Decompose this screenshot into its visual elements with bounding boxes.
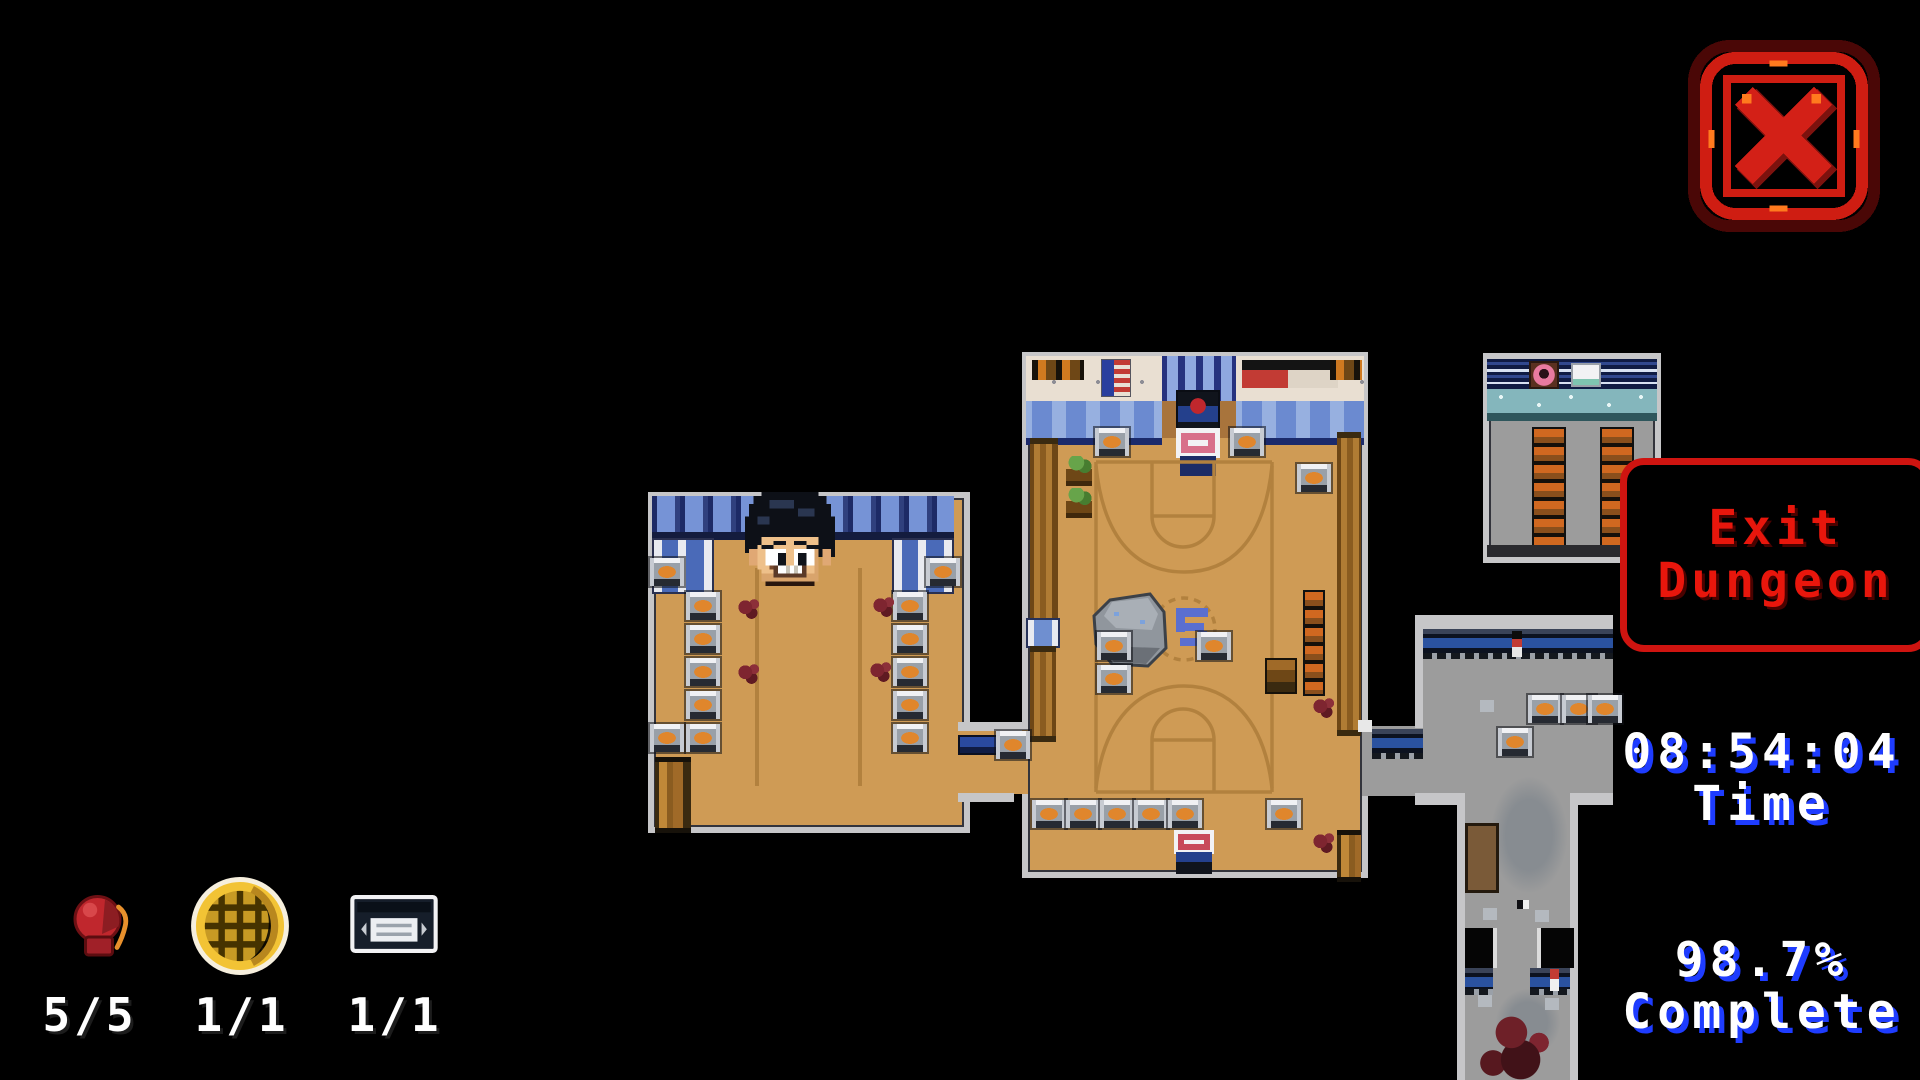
timer-block: 08:54:04 Time bbox=[1612, 726, 1912, 830]
desk bbox=[1168, 800, 1202, 828]
gym-cabinet-left bbox=[1028, 620, 1058, 646]
gym-bench-left bbox=[1030, 438, 1058, 632]
blood-splat bbox=[1312, 832, 1338, 854]
floor-tile-mark bbox=[1478, 995, 1492, 1007]
gym-bench-right bbox=[1337, 432, 1361, 736]
close-x-icon bbox=[1688, 40, 1880, 232]
desk bbox=[686, 691, 720, 719]
desk bbox=[1134, 800, 1168, 828]
potted-plant bbox=[1066, 488, 1092, 518]
wooden-crate bbox=[1267, 660, 1295, 692]
close-button[interactable] bbox=[1688, 40, 1880, 232]
door-mat bbox=[1468, 826, 1496, 890]
desk bbox=[893, 658, 927, 686]
blood-splat bbox=[737, 663, 763, 685]
blood-pool bbox=[1470, 1012, 1562, 1080]
menu-board-sign bbox=[1573, 365, 1599, 385]
backboard-bottom bbox=[1174, 830, 1214, 854]
cafeteria-counter bbox=[1487, 389, 1657, 421]
passage-cap bbox=[1358, 720, 1372, 732]
desk bbox=[893, 691, 927, 719]
collectible-count-tapes: 1/1 bbox=[335, 988, 455, 1042]
gym-bench-left bbox=[1030, 646, 1056, 742]
exit-button-line1: Exit bbox=[1708, 502, 1844, 555]
gym-shelf bbox=[1337, 830, 1361, 882]
desk bbox=[1100, 800, 1134, 828]
desk bbox=[1230, 428, 1264, 456]
classroom-floor-line-right bbox=[858, 568, 862, 786]
exit-dungeon-button[interactable]: Exit Dungeon bbox=[1620, 458, 1920, 652]
desk bbox=[1097, 632, 1131, 660]
desk bbox=[1066, 800, 1100, 828]
desk bbox=[1032, 800, 1066, 828]
corridor-door-jamb-right bbox=[1537, 928, 1574, 968]
corridor-lockers-mid-left bbox=[1465, 968, 1493, 995]
desk bbox=[686, 592, 720, 620]
completion-label: Complete bbox=[1612, 986, 1912, 1038]
locker-poster bbox=[1512, 631, 1522, 657]
desk bbox=[686, 625, 720, 653]
floor-tile-mark bbox=[1535, 910, 1549, 922]
basketball-hoop-bottom bbox=[1176, 852, 1212, 874]
corridor-door-jamb-left bbox=[1465, 928, 1497, 968]
player-head-marker bbox=[736, 492, 844, 598]
locker-poster bbox=[1550, 969, 1559, 991]
completion-block: 98.7% Complete bbox=[1612, 934, 1912, 1038]
desk bbox=[1097, 665, 1131, 693]
collectible-count-waffles: 1/1 bbox=[182, 988, 302, 1042]
desk bbox=[1498, 728, 1532, 756]
corridor-lower-wall-left bbox=[1457, 793, 1465, 1080]
blood-splat bbox=[872, 596, 898, 618]
cafeteria-chairs bbox=[1534, 429, 1564, 551]
corridor-step-wall-right bbox=[1578, 793, 1613, 805]
desk bbox=[1197, 632, 1231, 660]
passage-lockers bbox=[1372, 729, 1423, 759]
cafeteria-menu-wall bbox=[1487, 359, 1657, 389]
boxing-glove-icon bbox=[64, 886, 140, 964]
passage-wall-top bbox=[958, 722, 1022, 731]
corridor-top-wall bbox=[1415, 615, 1613, 629]
desk bbox=[650, 558, 684, 586]
completion-value: 98.7% bbox=[1612, 934, 1912, 986]
corridor-left-wall bbox=[1415, 615, 1423, 728]
floor-tile-mark bbox=[1483, 908, 1497, 920]
vhs-tape-icon bbox=[350, 894, 438, 954]
passage-wall-bottom bbox=[958, 793, 1014, 802]
blood-splat bbox=[869, 661, 895, 683]
desk bbox=[1267, 800, 1301, 828]
potted-plant bbox=[1066, 456, 1092, 486]
desk bbox=[893, 592, 927, 620]
stacked-chairs bbox=[1305, 592, 1323, 694]
desk bbox=[1297, 464, 1331, 492]
floor-tile-mark bbox=[1480, 700, 1494, 712]
waffle-icon bbox=[188, 874, 292, 978]
donut-sign bbox=[1531, 363, 1557, 387]
desk bbox=[686, 724, 720, 752]
blood-splat bbox=[737, 598, 763, 620]
desk bbox=[686, 658, 720, 686]
desk bbox=[996, 731, 1030, 759]
desk bbox=[1528, 695, 1562, 723]
desk bbox=[926, 558, 960, 586]
bookshelf bbox=[655, 757, 691, 833]
desk bbox=[893, 724, 927, 752]
blood-splat bbox=[1312, 697, 1338, 719]
floor-stain bbox=[1486, 770, 1572, 900]
desk bbox=[1095, 428, 1129, 456]
bench-table-blue bbox=[960, 737, 998, 753]
dropped-item bbox=[1517, 900, 1529, 909]
collectible-count-gloves: 5/5 bbox=[30, 988, 150, 1042]
desk bbox=[650, 724, 684, 752]
map-room-gymnasium bbox=[1022, 352, 1368, 878]
timer-label: Time bbox=[1612, 778, 1912, 830]
floor-tile-mark bbox=[1545, 998, 1559, 1010]
game-screen: Exit Dungeon 08:54:04 Time 98.7% Complet… bbox=[0, 0, 1920, 1080]
timer-value: 08:54:04 bbox=[1612, 726, 1912, 778]
desk bbox=[893, 625, 927, 653]
exit-button-line2: Dungeon bbox=[1657, 555, 1894, 608]
desk bbox=[1588, 695, 1622, 723]
